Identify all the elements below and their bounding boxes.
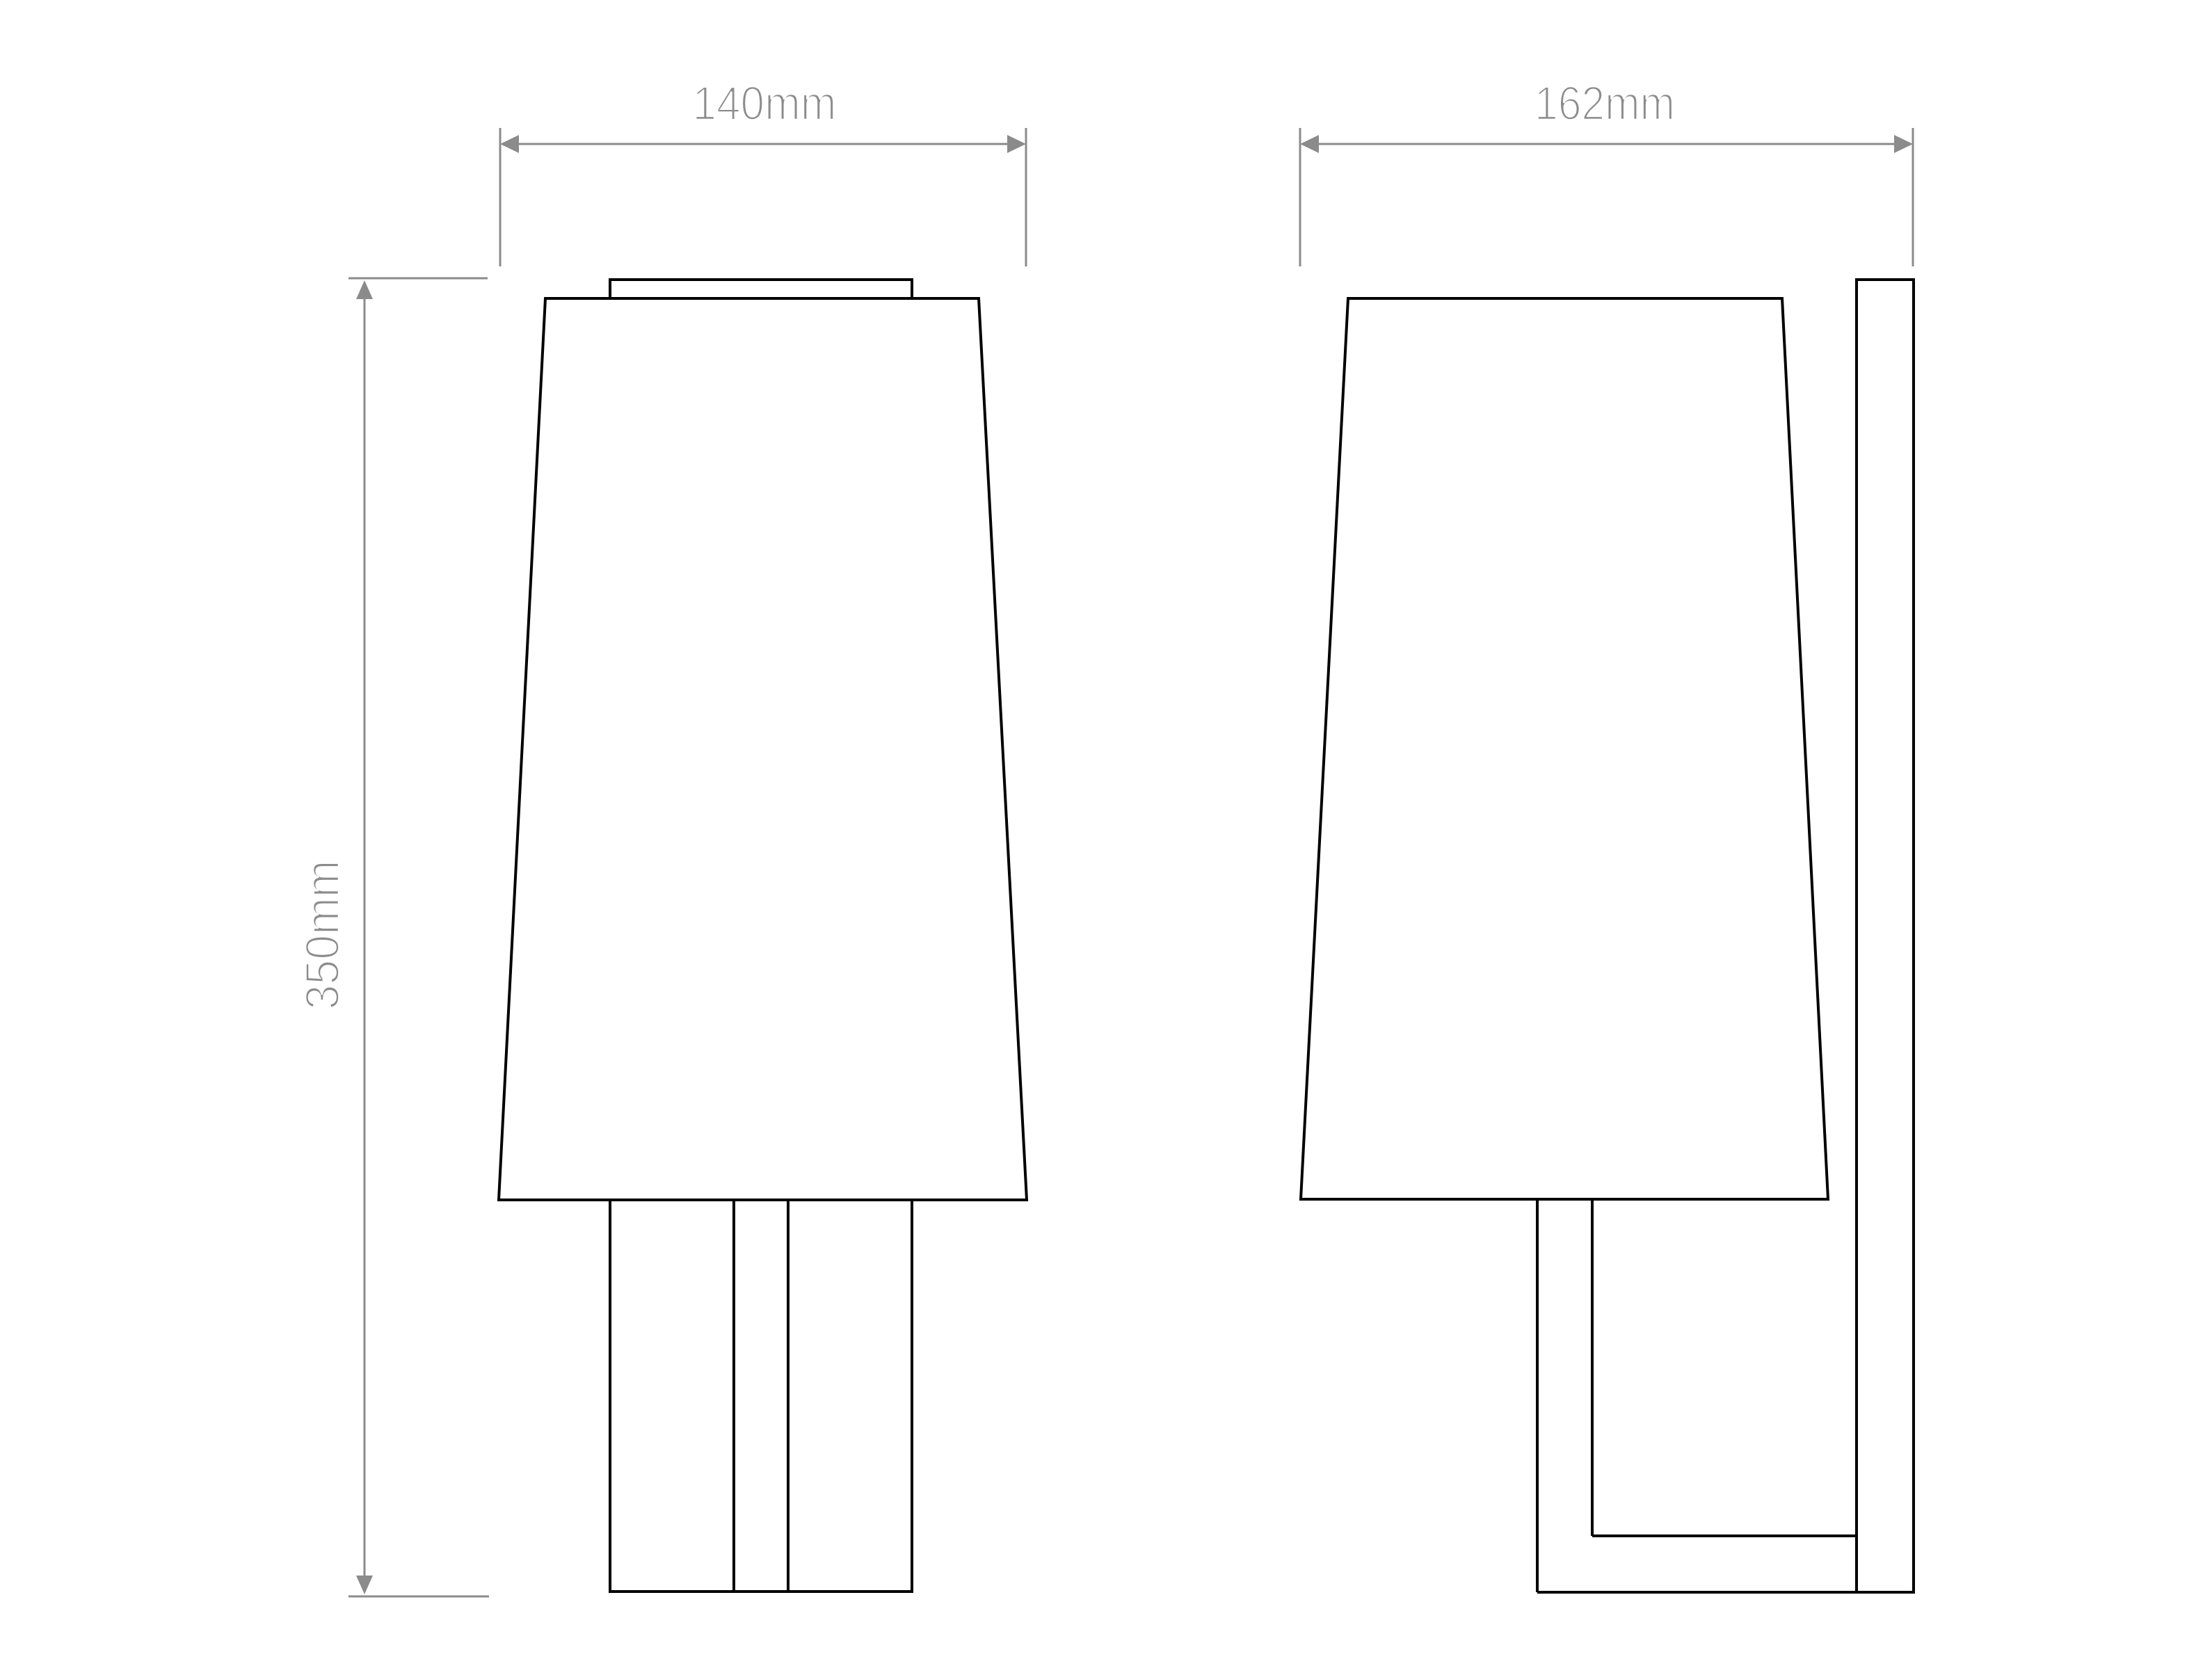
svg-text:162mm: 162mm: [1534, 77, 1675, 130]
svg-text:140mm: 140mm: [693, 77, 837, 130]
svg-text:350mm: 350mm: [296, 860, 349, 1010]
